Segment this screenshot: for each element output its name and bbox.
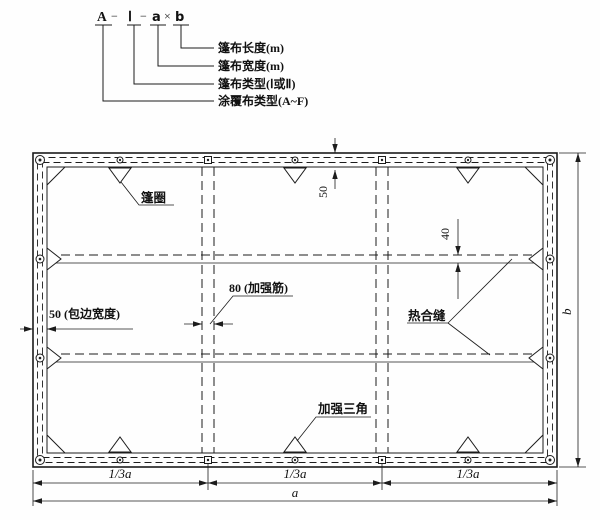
drawing-canvas: A − Ⅰ − a × b 篷布长度(m) 篷布宽度(m) 篷布类型(Ⅰ或Ⅱ) … <box>0 0 600 520</box>
leader-labels: 篷圈 热合缝 加强三角 80 (加强筋) 50 (包边宽度) <box>20 182 512 441</box>
seam-width-dimension-value: 40 <box>438 228 452 240</box>
reinforcement-triangle-label: 加强三角 <box>317 401 368 416</box>
seam-width-dimension: 40 <box>438 219 458 299</box>
corner-reinforcement-triangle-icons <box>47 167 543 453</box>
width-dimension-label: a <box>292 485 299 500</box>
top-hem-dimension-value: 50 <box>316 186 330 198</box>
triangle-leader: 加强三角 <box>297 401 371 441</box>
code-separator-1: − <box>111 9 118 23</box>
callout-length-label: 篷布长度(m) <box>218 40 284 55</box>
callout-type-label: 篷布类型(Ⅰ或Ⅱ) <box>218 76 295 91</box>
code-width-var: a <box>152 10 161 25</box>
code-tarp-type: Ⅰ <box>128 9 132 24</box>
code-coated-type: A <box>97 9 107 24</box>
code-times-sign: × <box>164 9 171 23</box>
code-length-var: b <box>175 10 184 25</box>
callout-connectors <box>103 25 214 101</box>
grommet-leader: 篷圈 <box>121 182 174 205</box>
rib-dimension: 80 (加强筋) <box>184 280 293 324</box>
width-dimension-a: a <box>33 485 557 501</box>
hem-dimension-label: 50 (包边宽度) <box>49 306 120 321</box>
reinforcement-triangle-icons-bottom <box>109 437 479 452</box>
heat-seam-leader: 热合缝 <box>407 259 512 355</box>
height-dimension-b: b <box>559 153 586 467</box>
third-dimension-label-2: 1/3a <box>283 466 307 481</box>
third-dimension-label-1: 1/3a <box>108 466 132 481</box>
height-dimension-label: b <box>559 308 574 315</box>
top-hem-dimension: 50 <box>316 138 335 198</box>
hem-dimension: 50 (包边宽度) <box>20 306 133 329</box>
hem-inner-edge <box>47 167 543 453</box>
code-separator-2: − <box>140 9 147 23</box>
heat-seam-lines <box>47 255 543 362</box>
grommet-label: 篷圈 <box>141 190 166 205</box>
tarpaulin-spec-drawing: A − Ⅰ − a × b 篷布长度(m) 篷布宽度(m) 篷布类型(Ⅰ或Ⅱ) … <box>0 0 600 520</box>
callout-width-label: 篷布宽度(m) <box>218 58 284 73</box>
heat-seam-label: 热合缝 <box>408 308 446 323</box>
square-grommet-icons <box>205 157 386 464</box>
third-dimension-label-3: 1/3a <box>456 466 480 481</box>
designation-code-block: A − Ⅰ − a × b 篷布长度(m) 篷布宽度(m) 篷布类型(Ⅰ或Ⅱ) … <box>95 9 308 108</box>
reinforcement-triangle-icons-top <box>109 168 479 183</box>
callout-coated-fabric-label: 涂覆布类型(A~F) <box>218 93 308 108</box>
rib-dimension-label: 80 (加强筋) <box>229 280 288 295</box>
reinforcement-triangle-icons-sides <box>47 248 543 369</box>
